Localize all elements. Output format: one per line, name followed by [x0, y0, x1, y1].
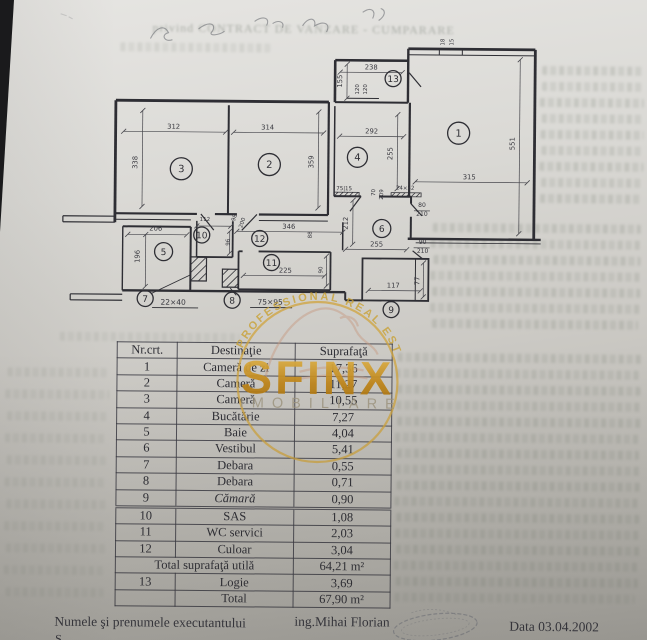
area-table: Nr.crt. Destinaţie Suprafaţă 1Cameră de … [114, 341, 392, 609]
table-cell: Total suprafaţă utilă [115, 557, 293, 575]
dimension-label: 80 [418, 202, 426, 209]
wall-line [190, 265, 206, 281]
handwriting-marks [60, 6, 384, 42]
bleed-text-line [397, 449, 639, 460]
wall-line [335, 102, 408, 103]
wall-line [222, 269, 238, 287]
table-cell [115, 590, 175, 607]
table-cell: 67,90 m² [293, 591, 390, 608]
table-cell: Debara [176, 473, 294, 490]
room-number-5: 5 [161, 248, 167, 258]
table-cell: 6 [116, 440, 176, 457]
dimension-line [318, 112, 319, 208]
table-cell: 11,27 [295, 376, 392, 393]
table-row: Total67,90 m² [115, 590, 390, 609]
wall-line [238, 289, 330, 290]
bleed-text-line [6, 587, 104, 597]
dimension-label: 15 [449, 38, 455, 46]
room-number-4: 4 [354, 153, 360, 164]
dimension-label: 77 [413, 276, 421, 285]
dimension-label: 75|15 [336, 186, 352, 192]
room-number-13: 13 [387, 75, 399, 85]
col-header-destination: Destinaţie [177, 342, 295, 359]
bleed-text-line [394, 561, 640, 572]
bleed-text-line [395, 593, 635, 604]
dimension-label: 314 [261, 123, 274, 131]
bleed-text-line [6, 499, 106, 509]
dimension-label: 120 [355, 84, 361, 95]
bleed-text-line [394, 497, 638, 508]
round-stamp [392, 609, 479, 640]
room-number-1: 1 [455, 129, 461, 140]
dimension-label: 225 [279, 267, 292, 275]
wall-line [335, 60, 408, 61]
room-number-7: 7 [142, 295, 148, 305]
floor-plan-drawing: 3123383143592381551201202922553155511815… [0, 0, 647, 348]
wall-line [115, 100, 116, 222]
wall-line [115, 219, 191, 220]
wall-line [534, 50, 536, 240]
dimension-label: 338 [131, 156, 139, 169]
table-cell: 5,41 [294, 442, 391, 459]
bleed-text-line [396, 401, 641, 412]
document-content: privind CONTRACT DE VANZARE - CUMPARARE … [0, 0, 647, 640]
wall-line [122, 226, 123, 290]
bleed-text-line [4, 565, 104, 575]
table-cell: 64,21 m² [293, 558, 390, 575]
dimension-label: 238 [365, 63, 378, 71]
bleed-text-line [395, 369, 641, 380]
table-cell: Debara [176, 457, 294, 474]
table-cell: Vestibul [176, 441, 294, 458]
wall-line [116, 100, 329, 102]
dimension-line [415, 182, 527, 183]
wall-line [350, 196, 361, 211]
dimension-line [346, 249, 407, 250]
table-cell: 7 [116, 456, 176, 473]
document-date: Data 03.04.2002 [509, 619, 599, 636]
table-cell: 0,55 [294, 458, 391, 475]
dimension-label: 117 [387, 282, 400, 290]
table-cell: Total [175, 590, 293, 607]
bleed-text-line [396, 545, 640, 556]
wall-line [408, 55, 535, 56]
table-cell: Baie [176, 424, 294, 441]
dimension-label: 120 [363, 84, 369, 95]
photographed-document: privind CONTRACT DE VANZARE - CUMPARARE … [0, 0, 647, 640]
dimension-line [142, 110, 143, 206]
dimension-label: 18 [440, 38, 446, 46]
dimension-label: 255 [370, 240, 383, 248]
dimension-line [234, 132, 324, 133]
wall-line [411, 193, 415, 197]
dimension-label: 90 [419, 239, 427, 246]
wall-line [408, 239, 541, 240]
wall-line [190, 257, 198, 265]
bleed-text-line [396, 465, 641, 476]
wall-line [259, 251, 331, 252]
dimension-line [340, 136, 404, 137]
table-cell: 2 [117, 375, 177, 392]
wall-line [222, 269, 228, 275]
bleed-text-line [7, 367, 107, 377]
room-number-11: 11 [266, 259, 278, 269]
room-number-12: 12 [254, 235, 266, 245]
bleed-text-line [7, 411, 107, 421]
wall-line [198, 273, 206, 281]
table-cell: Bucătărie [177, 408, 295, 425]
executor-label: Numele şi prenumele executantului [54, 614, 246, 632]
table-cell: 5 [116, 424, 176, 441]
col-header-nr: Nr.crt. [117, 342, 177, 359]
dimension-label: 22×40 [160, 298, 186, 307]
dimension-label: 312 [167, 123, 180, 131]
bleed-text-line [5, 389, 109, 399]
dimension-label: 200 [238, 217, 247, 229]
dimension-label: 292 [365, 127, 378, 135]
dimension-label: 75×95 [257, 297, 283, 306]
dimension-label: 196 [133, 250, 141, 263]
bleed-text-line [398, 353, 642, 364]
plan-dimension-labels: 3123383143592381551201202922553155511815… [130, 35, 517, 309]
dimension-label: 206 [149, 225, 162, 233]
wall-line [416, 243, 541, 244]
table-cell: 0,71 [294, 474, 391, 491]
bleed-text-line [395, 433, 641, 444]
wall-line [409, 103, 410, 197]
area-table-body: 1Cameră de zi17,362Cameră11,273Cameră10,… [115, 358, 392, 608]
table-cell: 10,55 [295, 392, 392, 409]
bleed-text-line [5, 433, 107, 443]
table-cell: 3,69 [293, 575, 390, 592]
dimension-label: 112 [200, 217, 211, 223]
bleed-text-line [396, 513, 639, 524]
bleed-text-line [6, 543, 108, 553]
wall-line [259, 214, 328, 215]
dimension-label: 98 [231, 213, 239, 222]
table-cell: Cameră [177, 375, 295, 392]
table-cell: 11 [116, 524, 176, 541]
table-cell: Cămară [176, 490, 294, 508]
dimension-line [237, 231, 343, 232]
bleed-text-line [7, 455, 107, 465]
dimension-label: 255 [386, 147, 394, 160]
bleed-text-line [397, 385, 640, 396]
table-cell: SAS [176, 507, 294, 525]
col-header-area: Suprafaţă [295, 343, 392, 360]
wall-line [222, 269, 236, 283]
table-cell: Cameră [177, 391, 295, 408]
table-cell: 3 [117, 391, 177, 408]
bleed-text-line [5, 477, 107, 487]
dimension-line [519, 60, 521, 234]
room-number-3: 3 [178, 164, 184, 175]
table-cell: 7,27 [295, 409, 392, 426]
table-cell: 13 [115, 573, 175, 590]
table-cell: 4,04 [294, 425, 391, 442]
dimension-label: 90 [318, 266, 324, 274]
wall-line [408, 49, 535, 50]
dimension-line [128, 234, 187, 235]
table-cell: 8 [116, 473, 176, 490]
room-number-9: 9 [388, 306, 394, 316]
wall-line [334, 106, 335, 196]
bleed-text-line [396, 577, 638, 588]
wall-line [409, 73, 421, 87]
dimension-label: 346 [282, 223, 295, 231]
table-cell: 10 [116, 507, 176, 525]
wall-line [115, 213, 197, 214]
table-cell: 12 [115, 540, 175, 557]
table-cell: Cameră de zi [177, 359, 295, 376]
dimension-line [340, 72, 402, 73]
dimension-line [124, 131, 226, 132]
dimension-label: 212 [342, 217, 350, 230]
bleed-text-line [397, 417, 641, 428]
room-number-8: 8 [229, 297, 235, 307]
table-cell: Logie [175, 574, 293, 591]
dimension-label: 88 [308, 231, 314, 239]
wall-line [190, 257, 206, 273]
table-cell: 1,08 [294, 508, 391, 526]
table-cell: 17,36 [295, 360, 392, 377]
dimension-line [243, 275, 324, 276]
dimension-label: 70 [371, 188, 377, 196]
cropped-text-line: S [55, 632, 62, 640]
wall-line [190, 257, 206, 281]
wall-line [228, 105, 229, 214]
room-number-2: 2 [266, 160, 272, 171]
wall-line [259, 220, 328, 221]
dimension-label: 96 [226, 238, 232, 246]
dimension-label: 209 [379, 189, 385, 200]
executor-name: ing.Mihai Florian [294, 614, 389, 631]
dimension-line [397, 115, 398, 189]
table-cell: 9 [116, 489, 176, 507]
wall-line [328, 102, 329, 215]
room-number-6: 6 [379, 225, 385, 235]
room-number-10: 10 [196, 231, 208, 241]
table-cell: 0,90 [294, 491, 391, 509]
bleed-text-line [397, 481, 641, 492]
dimension-label: 551 [508, 137, 516, 150]
table-cell: 1 [117, 358, 177, 375]
bleed-text-line [4, 521, 104, 531]
table-cell: 3,04 [293, 542, 390, 559]
dimension-label: 210 [417, 248, 429, 255]
table-cell: 4 [117, 407, 177, 424]
table-cell: 2,03 [294, 526, 391, 543]
dimension-label: 155 [336, 75, 344, 88]
dimension-label: 24×52 [396, 186, 415, 192]
dimension-label: 359 [307, 155, 315, 168]
table-cell: WC servici [176, 525, 294, 542]
table-cell: Culoar [175, 541, 293, 558]
dimension-label: 210 [416, 211, 428, 218]
bleed-text-line [395, 529, 640, 540]
dimension-label: 315 [463, 173, 476, 181]
wall-line [416, 193, 420, 197]
